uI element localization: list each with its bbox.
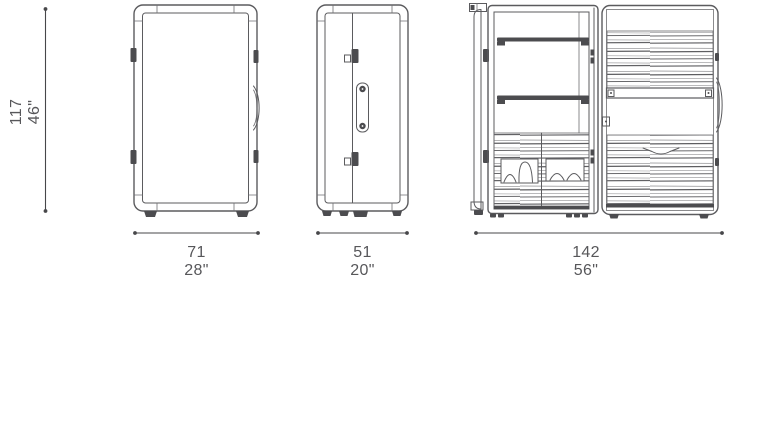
side-view-outline: [317, 5, 408, 211]
feet: [144, 211, 249, 217]
width-dimension: 71 28": [133, 231, 260, 279]
lower-compartment: [494, 133, 589, 209]
furniture-dimension-drawing: 117 46" 71 28" 51 20" 142 56": [0, 0, 774, 427]
corner-brackets: [317, 5, 408, 211]
latch-icon: [254, 50, 259, 63]
open-door-edge: [470, 4, 490, 216]
front-door-panel: [143, 13, 249, 203]
width-in-label: 28": [184, 262, 208, 279]
hinge-icon: [131, 150, 137, 164]
latch-icon: [715, 158, 719, 166]
latch-icon: [715, 53, 719, 61]
tambour-door: [607, 31, 714, 98]
height-cm-label: 117: [8, 99, 25, 125]
front-view: [131, 5, 260, 217]
depth-dimension: 51 20": [316, 231, 409, 279]
shelf: [497, 96, 589, 105]
hinge-icon: [131, 48, 137, 62]
height-dimension: 117 46": [8, 7, 47, 213]
shoe-drawer: [546, 159, 584, 181]
latch-icon: [345, 49, 359, 63]
latch-icon: [345, 152, 359, 166]
open-width-in-label: 56": [574, 262, 598, 279]
depth-cm-label: 51: [353, 244, 371, 261]
height-in-label: 46": [26, 100, 43, 124]
technical-drawing-canvas: 117 46" 71 28" 51 20" 142 56": [0, 0, 774, 427]
handle-icon: [357, 83, 369, 132]
side-panel: [325, 13, 400, 203]
shelf: [497, 38, 589, 46]
open-width-dimension: 142 56": [474, 231, 724, 279]
latch-icon: [254, 150, 259, 163]
open-width-cm-label: 142: [572, 244, 600, 261]
depth-in-label: 20": [350, 262, 374, 279]
side-view: [317, 5, 408, 217]
tambour-bottom-rail: [607, 88, 714, 98]
drawer-front: [606, 135, 714, 208]
open-view-left-half: [470, 4, 599, 218]
feet: [322, 211, 402, 217]
width-cm-label: 71: [187, 244, 205, 261]
shoe-drawer: [501, 159, 538, 183]
corner-brackets: [134, 5, 257, 211]
front-view-outline: [134, 5, 257, 211]
open-view-right-half: [602, 6, 722, 219]
